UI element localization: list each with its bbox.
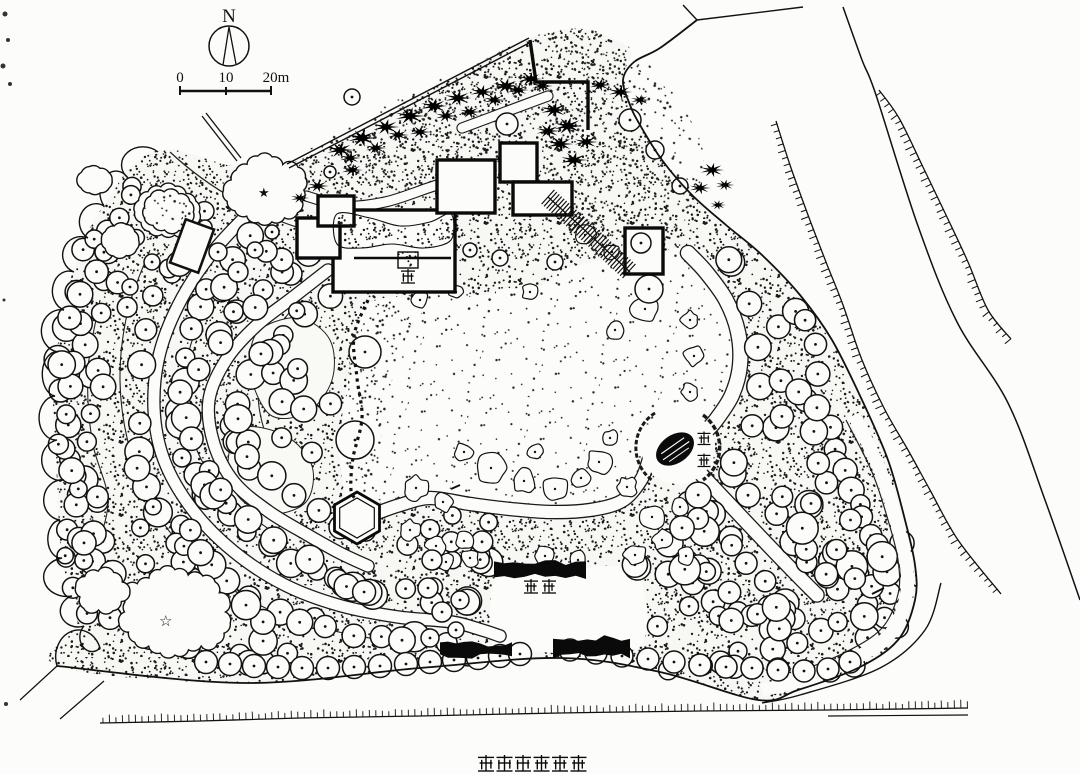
svg-text:☆: ☆ (159, 613, 172, 630)
svg-text:20m: 20m (263, 70, 290, 86)
svg-text:0: 0 (176, 70, 184, 86)
svg-text:10: 10 (219, 70, 234, 86)
svg-text:★: ★ (258, 185, 270, 200)
svg-text:N: N (222, 6, 236, 27)
